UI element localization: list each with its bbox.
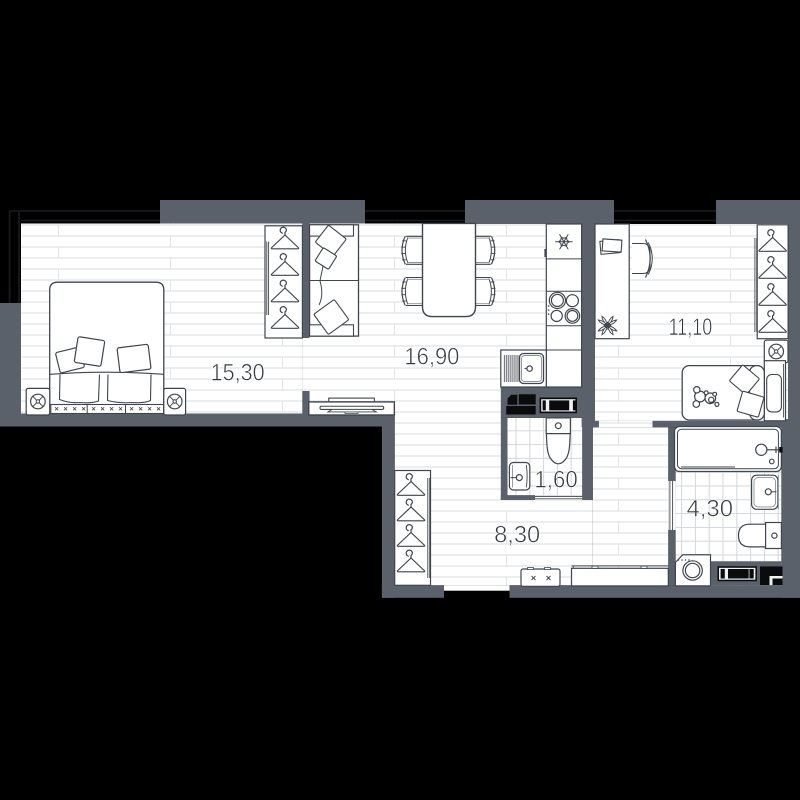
svg-text:8,30: 8,30 <box>494 522 540 549</box>
svg-text:1,60: 1,60 <box>534 466 577 493</box>
svg-text:16,90: 16,90 <box>404 343 459 370</box>
svg-text:11,10: 11,10 <box>669 314 713 341</box>
svg-text:4,30: 4,30 <box>687 496 734 523</box>
svg-text:15,30: 15,30 <box>211 360 265 387</box>
